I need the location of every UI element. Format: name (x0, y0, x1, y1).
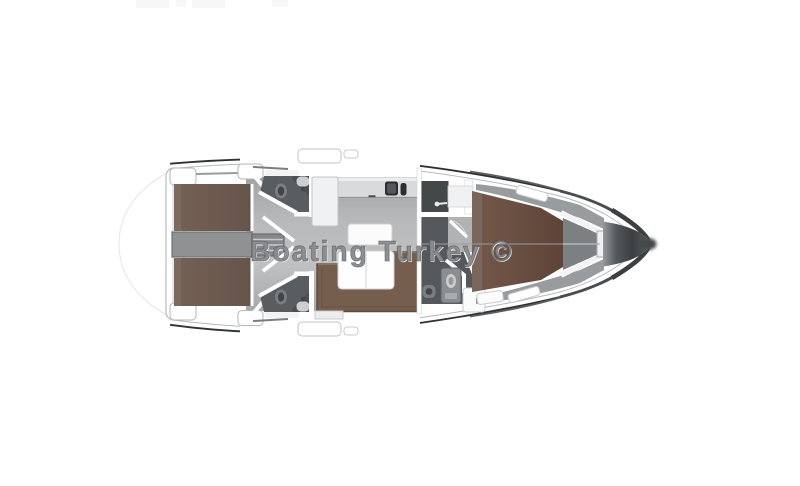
svg-text:Boating Turkey ©: Boating Turkey © (250, 236, 513, 268)
